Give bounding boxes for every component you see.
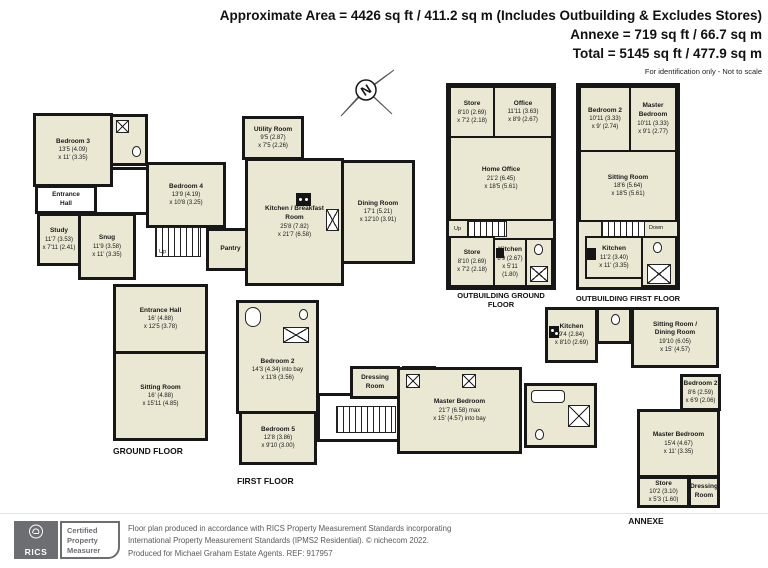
ground-floor-label: GROUND FLOOR — [113, 446, 183, 456]
room-dim: x 6'9 (2.06) — [686, 397, 716, 405]
room-sitting-dining-annexe: Sitting Room / Dining Room 19'10 (6.05) … — [631, 307, 719, 368]
staircase-obf — [601, 221, 645, 237]
room-home-office-obg: Home Office 21'2 (6.45) x 18'5 (5.61) — [449, 136, 553, 221]
room-name: Bedroom 2 — [261, 358, 295, 367]
room-store-annexe: Store 10'2 (3.10) x 5'3 (1.60) — [637, 476, 690, 508]
room-dim: 18'6 (5.64) — [614, 182, 643, 190]
room-bathroom-gf — [110, 114, 148, 166]
room-dim: 11'9 (3.58) — [93, 243, 121, 251]
room-name: Snug — [99, 234, 115, 243]
room-dim: x 5'11 (1.80) — [495, 263, 525, 279]
room-kitchen-obg: Kitchen 8'9 (2.67) x 5'11 (1.80) — [493, 238, 527, 287]
room-kitchen-obf: Kitchen 11'2 (3.40) x 11' (3.35) — [585, 236, 643, 279]
shower-icon — [283, 327, 309, 343]
room-dim: 25'8 (7.82) — [280, 223, 309, 231]
room-bedroom-3: Bedroom 3 13'5 (4.09) x 11' (3.35) — [33, 113, 113, 187]
room-name: Bedroom 5 — [261, 426, 295, 435]
room-name: Bedroom 2 — [684, 380, 718, 389]
compass-rose-icon: N — [333, 60, 399, 129]
toilet-icon — [653, 242, 662, 253]
room-sitting-gf: Sitting Room 16' (4.88) x 15'11 (4.85) — [113, 351, 208, 441]
toilet-icon — [611, 314, 620, 325]
room-name: Kitchen — [560, 323, 584, 332]
wardrobe-icon — [462, 374, 476, 388]
bathtub-icon — [531, 390, 565, 403]
room-dim: x 5'3 (1.60) — [649, 496, 679, 504]
staircase-obg — [467, 221, 507, 237]
room-dim: 10'11 (3.33) — [589, 115, 620, 123]
room-name: Dining Room — [358, 200, 398, 209]
shower-icon — [530, 266, 548, 282]
shower-icon — [116, 120, 129, 133]
room-dim: 17'1 (5.21) — [364, 208, 393, 216]
room-dim: 15'4 (4.67) — [664, 440, 693, 448]
wardrobe-icon — [406, 374, 420, 388]
room-name: Entrance Hall — [140, 307, 182, 316]
room-kitchen-annexe: Kitchen 9'4 (2.84) x 8'10 (2.69) — [545, 307, 598, 363]
toilet-icon — [299, 309, 308, 320]
room-name: Sitting Room — [608, 174, 648, 183]
bathtub-icon — [245, 307, 261, 327]
room-dim: x 11'8 (3.56) — [261, 374, 294, 382]
room-dim: 12'8 (3.86) — [264, 434, 293, 442]
stove-icon — [296, 193, 311, 206]
room-dim: 9'4 (2.84) — [559, 331, 584, 339]
room-bedroom2-annexe: Bedroom 2 8'6 (2.59) x 6'9 (2.06) — [680, 374, 721, 411]
floorplan-canvas: Approximate Area = 4426 sq ft / 411.2 sq… — [0, 0, 768, 568]
room-dim: x 7'2 (2.18) — [457, 266, 487, 274]
room-dim: x 8'9 (2.67) — [508, 116, 538, 124]
room-dim: 8'10 (2.69) — [458, 258, 487, 266]
header: Approximate Area = 4426 sq ft / 411.2 sq… — [220, 6, 762, 76]
room-dim: x 7'5 (2.26) — [258, 142, 288, 150]
first-floor-label: FIRST FLOOR — [237, 476, 294, 486]
stove-icon — [496, 248, 504, 258]
room-dim: 9'5 (2.87) — [260, 134, 285, 142]
room-name: Sitting Room / Dining Room — [645, 321, 705, 339]
room-dim: x 9' (2.74) — [592, 123, 619, 131]
room-dim: x 18'5 (5.61) — [611, 190, 644, 198]
room-dim: x 11' (3.35) — [599, 262, 628, 270]
annexe-label: ANNEXE — [596, 516, 696, 526]
room-bath-obf — [641, 236, 677, 287]
room-office-obg: Office 11'11 (3.63) x 8'9 (2.67) — [493, 86, 553, 138]
room-name: Master Bedroom — [434, 398, 485, 407]
stove-icon — [587, 248, 596, 260]
outbuilding-first: Bedroom 2 10'11 (3.33) x 9' (2.74) Maste… — [576, 83, 680, 290]
room-entrance-hall: Entrance Hall 16' (4.88) x 12'5 (3.78) — [113, 284, 208, 354]
certified-property-measurer-badge: Certified Property Measurer — [60, 521, 120, 559]
room-name: Store — [464, 249, 481, 258]
range-icon — [326, 209, 339, 231]
room-study: Study 11'7 (3.53) x 7'11 (2.41) — [37, 213, 81, 266]
rics-logo: RICS — [14, 521, 58, 559]
room-store-top-obg: Store 8'10 (2.69) x 7'2 (2.18) — [449, 86, 495, 139]
room-kitchen-breakfast: Kitchen / Breakfast Room 25'8 (7.82) x 2… — [245, 158, 344, 286]
room-master-obf: Master Bedroom 10'11 (3.33) x 9'1 (2.77) — [629, 86, 677, 152]
room-dim: 21'7 (6.58) max — [439, 407, 481, 415]
room-name: Utility Room — [254, 126, 292, 135]
room-dim: x 9'1 (2.77) — [638, 128, 668, 136]
room-dim: 10'2 (3.10) — [649, 488, 678, 496]
room-dim: x 11' (3.35) — [58, 154, 87, 162]
room-dim: 16' (4.88) — [148, 392, 173, 400]
room-name: Home Office — [482, 166, 520, 175]
room-dim: 13'9 (4.19) — [172, 191, 201, 199]
outbuilding-ground: Store 8'10 (2.69) x 7'2 (2.18) Office 11… — [446, 83, 556, 290]
room-dim: x 9'10 (3.00) — [261, 442, 294, 450]
footer-line-1: Floor plan produced in accordance with R… — [128, 523, 451, 535]
toilet-icon — [132, 146, 141, 157]
rics-lion-icon — [27, 524, 45, 539]
room-dim: x 15'11 (4.85) — [142, 400, 178, 408]
room-dim: 13'5 (4.09) — [59, 146, 88, 154]
room-dim: x 21'7 (6.58) — [278, 231, 311, 239]
room-dim: x 15' (4.57) — [660, 346, 690, 354]
room-dim: x 11' (3.35) — [92, 251, 121, 259]
room-name: Master Bedroom — [653, 431, 704, 440]
room-ensuite-ff — [524, 383, 597, 448]
room-name: Bedroom 4 — [169, 183, 203, 192]
room-name: Store — [464, 100, 481, 109]
shower-icon — [647, 264, 671, 284]
room-store-bottom-obg: Store 8'10 (2.69) x 7'2 (2.18) — [449, 236, 495, 287]
stove-icon — [549, 326, 559, 338]
toilet-icon — [535, 429, 544, 440]
room-master-annexe: Master Bedroom 15'4 (4.67) x 11' (3.35) — [637, 409, 720, 478]
room-dim: 14'3 (4.34) into bay — [252, 366, 303, 374]
outbuilding-first-label: OUTBUILDING FIRST FLOOR — [570, 294, 686, 303]
room-name: Sitting Room — [140, 384, 180, 393]
room-dim: 8'6 (2.59) — [688, 389, 713, 397]
room-snug: Snug 11'9 (3.58) x 11' (3.35) — [78, 213, 136, 280]
room-bath-obg — [525, 238, 553, 287]
room-dim: 11'7 (3.53) — [45, 236, 73, 244]
footer-divider — [0, 513, 768, 514]
room-name: Dressing Room — [358, 374, 392, 392]
room-dim: 21'2 (6.45) — [487, 175, 516, 183]
room-dressing-annexe: Dressing Room — [688, 476, 720, 508]
room-dressing-ff: Dressing Room — [350, 366, 400, 399]
room-sitting-obf: Sitting Room 18'6 (5.64) x 18'5 (5.61) — [579, 150, 677, 222]
room-dining: Dining Room 17'1 (5.21) x 12'10 (3.91) — [341, 160, 415, 264]
room-dim: x 12'10 (3.91) — [360, 216, 397, 224]
room-bath-annexe — [596, 307, 632, 344]
room-dim: x 11' (3.35) — [664, 448, 693, 456]
stairs-up-label: Up — [454, 226, 461, 232]
total-area-line: Total = 5145 sq ft / 477.9 sq m — [220, 44, 762, 63]
room-dim: x 7'2 (2.18) — [457, 117, 487, 125]
room-dim: 8'10 (2.69) — [458, 109, 487, 117]
room-bedroom-4: Bedroom 4 13'9 (4.19) x 10'8 (3.25) — [146, 162, 226, 228]
room-name: Pantry — [220, 245, 240, 254]
room-name: Kitchen — [602, 245, 626, 254]
footer-line-3: Produced for Michael Graham Estate Agent… — [128, 548, 451, 560]
room-name: Bedroom 3 — [56, 138, 90, 147]
outbuilding-ground-label: OUTBUILDING GROUND FLOOR — [444, 291, 558, 309]
room-dim: x 12'5 (3.78) — [144, 323, 177, 331]
shower-icon — [568, 405, 590, 427]
room-dim: 11'11 (3.63) — [508, 108, 539, 116]
room-dim: 11'2 (3.40) — [600, 254, 628, 262]
room-dim: 16' (4.88) — [148, 315, 173, 323]
toilet-icon — [534, 244, 543, 255]
room-name: Store — [655, 480, 672, 489]
annexe-area-line: Annexe = 719 sq ft / 66.7 sq m — [220, 25, 762, 44]
room-dim: 10'11 (3.33) — [637, 120, 668, 128]
room-bedroom-2-ff: Bedroom 2 14'3 (4.34) into bay x 11'8 (3… — [236, 300, 319, 414]
room-name: Entrance Hall — [49, 191, 83, 209]
room-name: Master Bedroom — [631, 102, 675, 120]
room-name: Study — [50, 227, 68, 236]
stairs-down-label: Down — [649, 225, 663, 231]
room-dim: x 8'10 (2.69) — [555, 339, 588, 347]
room-name: Bedroom 2 — [588, 107, 622, 116]
room-entrance-hall-small: Entrance Hall — [35, 185, 97, 214]
room-dim: x 10'8 (3.25) — [169, 199, 202, 207]
approximate-area-line: Approximate Area = 4426 sq ft / 411.2 sq… — [220, 6, 762, 25]
room-dim: 19'10 (6.05) — [659, 338, 691, 346]
rics-wordmark: RICS — [25, 547, 48, 557]
scale-disclaimer: For identification only - Not to scale — [220, 67, 762, 76]
room-dim: x 7'11 (2.41) — [43, 244, 76, 252]
room-bedroom2-obf: Bedroom 2 10'11 (3.33) x 9' (2.74) — [579, 86, 631, 152]
room-name: Kitchen / Breakfast Room — [265, 205, 325, 223]
stairs-up-label: Up — [159, 249, 166, 255]
footer-line-2: International Property Measurement Stand… — [128, 535, 451, 547]
room-bedroom-5: Bedroom 5 12'8 (3.86) x 9'10 (3.00) — [239, 411, 317, 465]
room-name: Office — [514, 100, 532, 109]
room-dim: x 18'5 (5.61) — [484, 183, 517, 191]
room-utility: Utility Room 9'5 (2.87) x 7'5 (2.26) — [242, 116, 304, 160]
room-name: Dressing Room — [690, 483, 718, 501]
footer-text: Floor plan produced in accordance with R… — [128, 523, 451, 560]
room-master-ff: Master Bedroom 21'7 (6.58) max x 15' (4.… — [397, 367, 522, 454]
room-dim: x 15' (4.57) into bay — [433, 415, 486, 423]
staircase-first — [336, 406, 396, 433]
